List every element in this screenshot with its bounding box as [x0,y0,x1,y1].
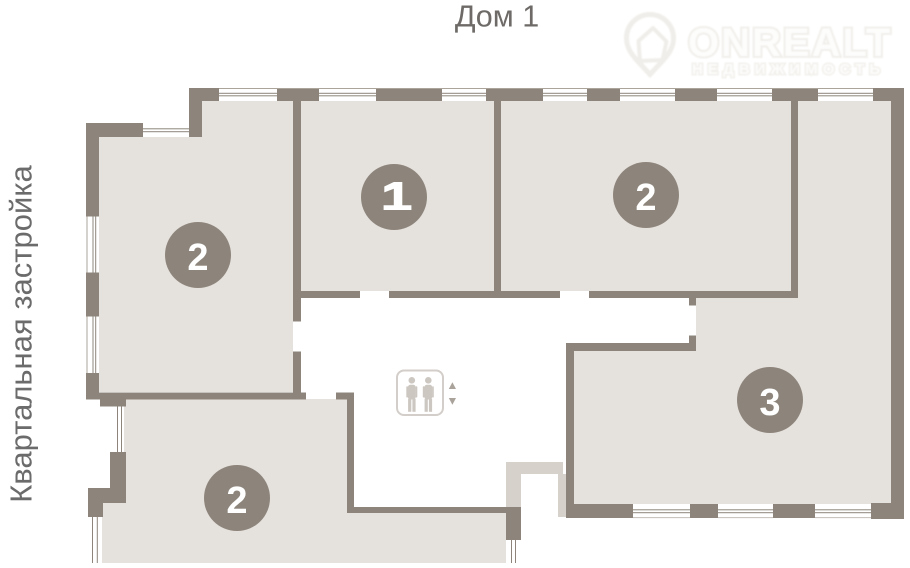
svg-text:ONREALT: ONREALT [688,21,892,65]
svg-text:3: 3 [759,382,780,424]
svg-text:Дом 1: Дом 1 [455,0,539,34]
svg-text:Квартальная застройка: Квартальная застройка [4,164,39,502]
svg-text:2: 2 [635,177,656,219]
svg-text:НЕДВИЖИМОСТЬ: НЕДВИЖИМОСТЬ [692,61,885,78]
svg-text:2: 2 [226,480,247,522]
svg-text:2: 2 [187,237,208,279]
